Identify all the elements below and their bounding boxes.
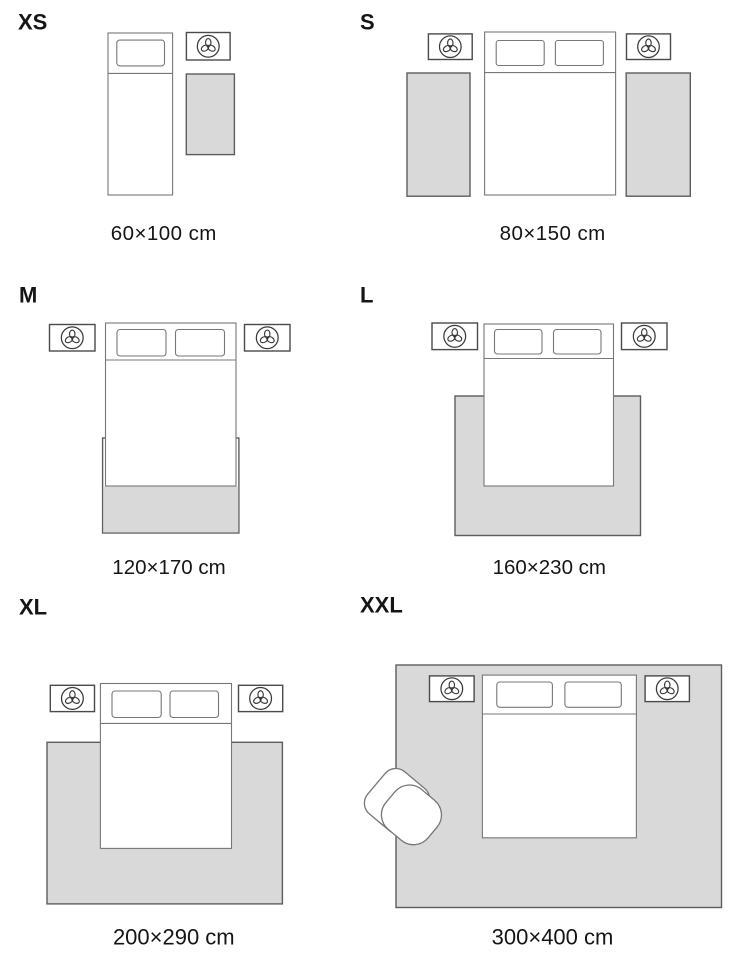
svg-text:M: M: [19, 283, 37, 308]
svg-text:XS: XS: [18, 10, 47, 35]
svg-text:60×100 cm: 60×100 cm: [111, 222, 217, 245]
svg-text:XXL: XXL: [360, 593, 403, 618]
svg-text:L: L: [360, 283, 373, 308]
svg-text:XL: XL: [19, 595, 47, 620]
svg-text:200×290 cm: 200×290 cm: [113, 925, 235, 950]
svg-text:160×230 cm: 160×230 cm: [493, 556, 606, 579]
svg-text:300×400 cm: 300×400 cm: [492, 925, 614, 950]
svg-text:80×150 cm: 80×150 cm: [500, 222, 606, 245]
svg-text:S: S: [360, 10, 375, 35]
svg-text:120×170 cm: 120×170 cm: [112, 556, 225, 579]
